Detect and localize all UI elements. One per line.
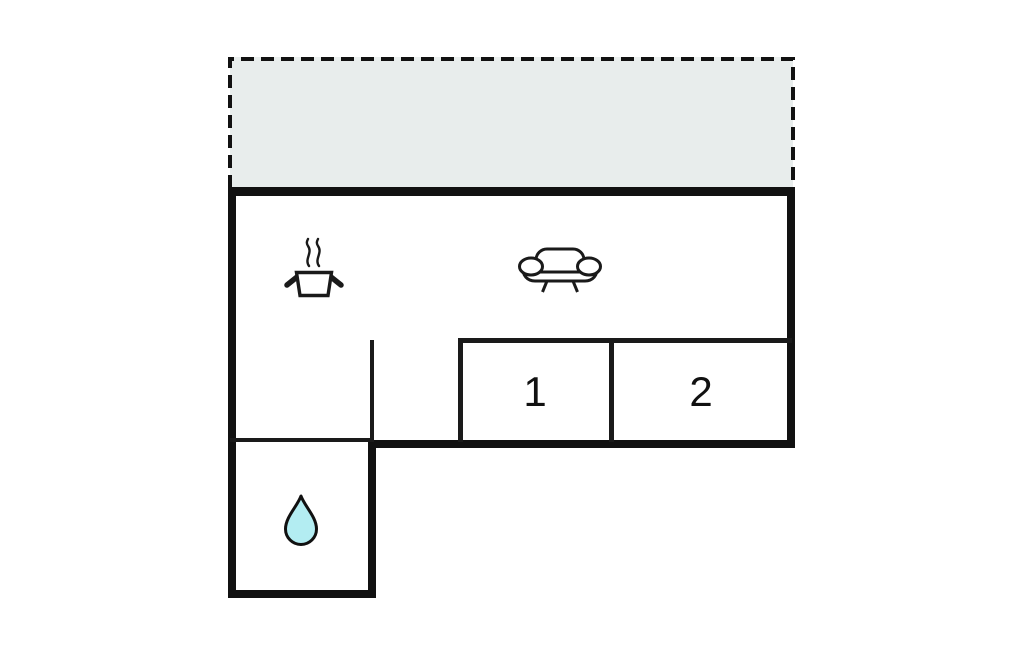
room-2-label: 2 (689, 368, 712, 415)
wall-interior-vertical (370, 340, 374, 442)
floor-plan-canvas: 1 2 (0, 0, 1024, 652)
wall-bathroom-right (368, 440, 376, 598)
sofa-armrest-left (520, 258, 543, 275)
wall-top (228, 187, 795, 196)
steam-line-right (317, 239, 320, 266)
terrace-area (230, 57, 793, 188)
sofa-armrest-right (578, 258, 601, 275)
pot-body (297, 273, 332, 296)
wall-right (787, 187, 795, 448)
sofa-leg-left (543, 281, 548, 292)
wall-left (228, 187, 236, 598)
wall-bottom-main (368, 440, 795, 448)
wall-room-divider (609, 338, 614, 442)
sofa-icon (520, 249, 601, 292)
sofa-leg-right (573, 281, 578, 292)
wall-rooms-top (458, 338, 792, 343)
water-drop-icon (286, 496, 317, 545)
steam-line-left (307, 239, 310, 266)
wall-room1-left (458, 338, 463, 442)
pot-handle-left (287, 277, 297, 285)
cooking-pot-icon (287, 239, 341, 296)
floor-plan: 1 2 (0, 0, 1024, 652)
terrace-fill (230, 57, 793, 188)
room-1-label: 1 (523, 368, 546, 415)
pot-handle-right (331, 277, 341, 285)
wall-bathroom-bottom (228, 590, 376, 598)
wall-bathroom-top (230, 438, 372, 442)
